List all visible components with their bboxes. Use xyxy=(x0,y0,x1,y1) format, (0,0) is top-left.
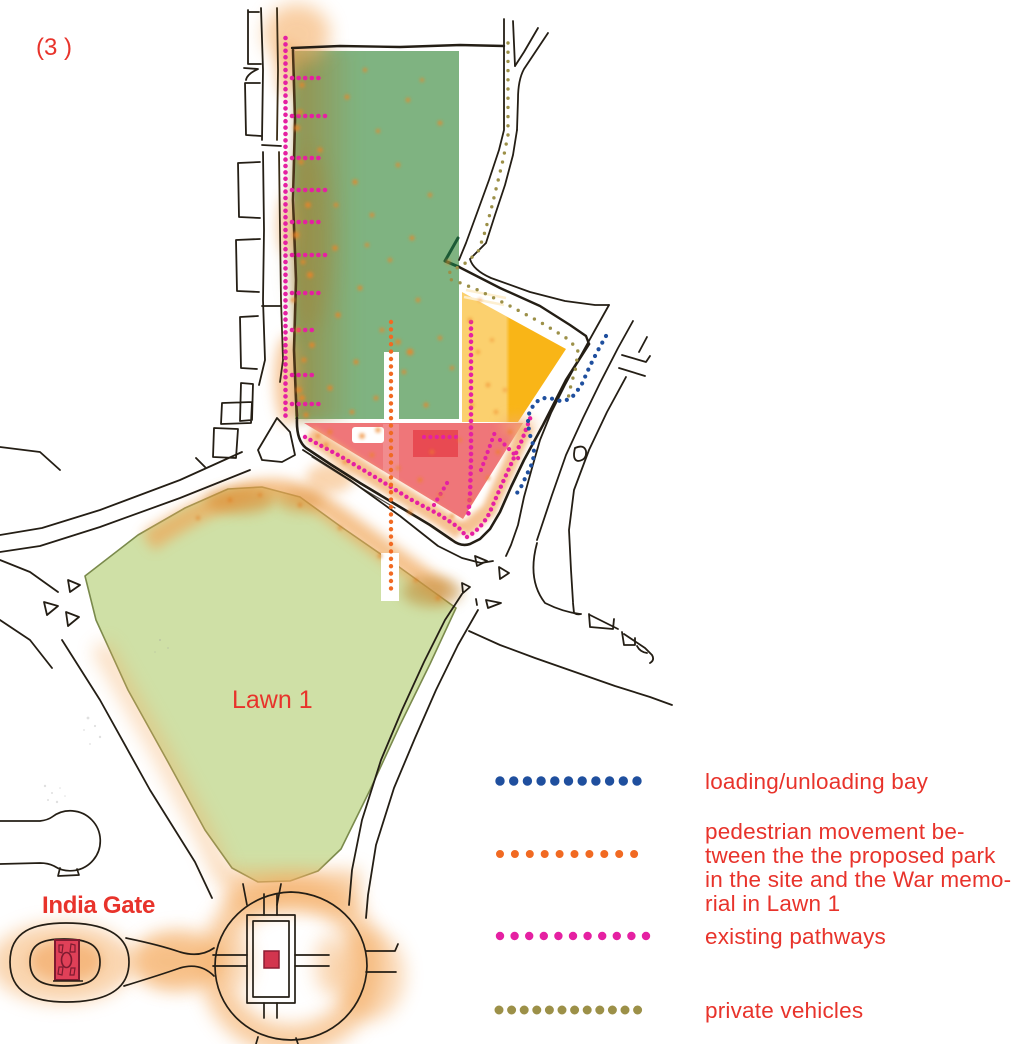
svg-text:existing pathways: existing pathways xyxy=(705,924,886,949)
svg-text:private vehicles: private vehicles xyxy=(705,998,863,1023)
svg-text:(3 ): (3 ) xyxy=(36,34,72,61)
svg-text:loading/unloading bay: loading/unloading bay xyxy=(705,769,929,794)
svg-text:tween the the proposed park: tween the the proposed park xyxy=(705,843,996,868)
svg-text:pedestrian movement be-: pedestrian movement be- xyxy=(705,819,965,844)
svg-text:India Gate: India Gate xyxy=(42,892,155,919)
svg-text:in the site and the War memo-: in the site and the War memo- xyxy=(705,867,1011,892)
svg-text:rial in Lawn 1: rial in Lawn 1 xyxy=(705,891,840,916)
svg-text:Lawn 1: Lawn 1 xyxy=(232,686,313,714)
